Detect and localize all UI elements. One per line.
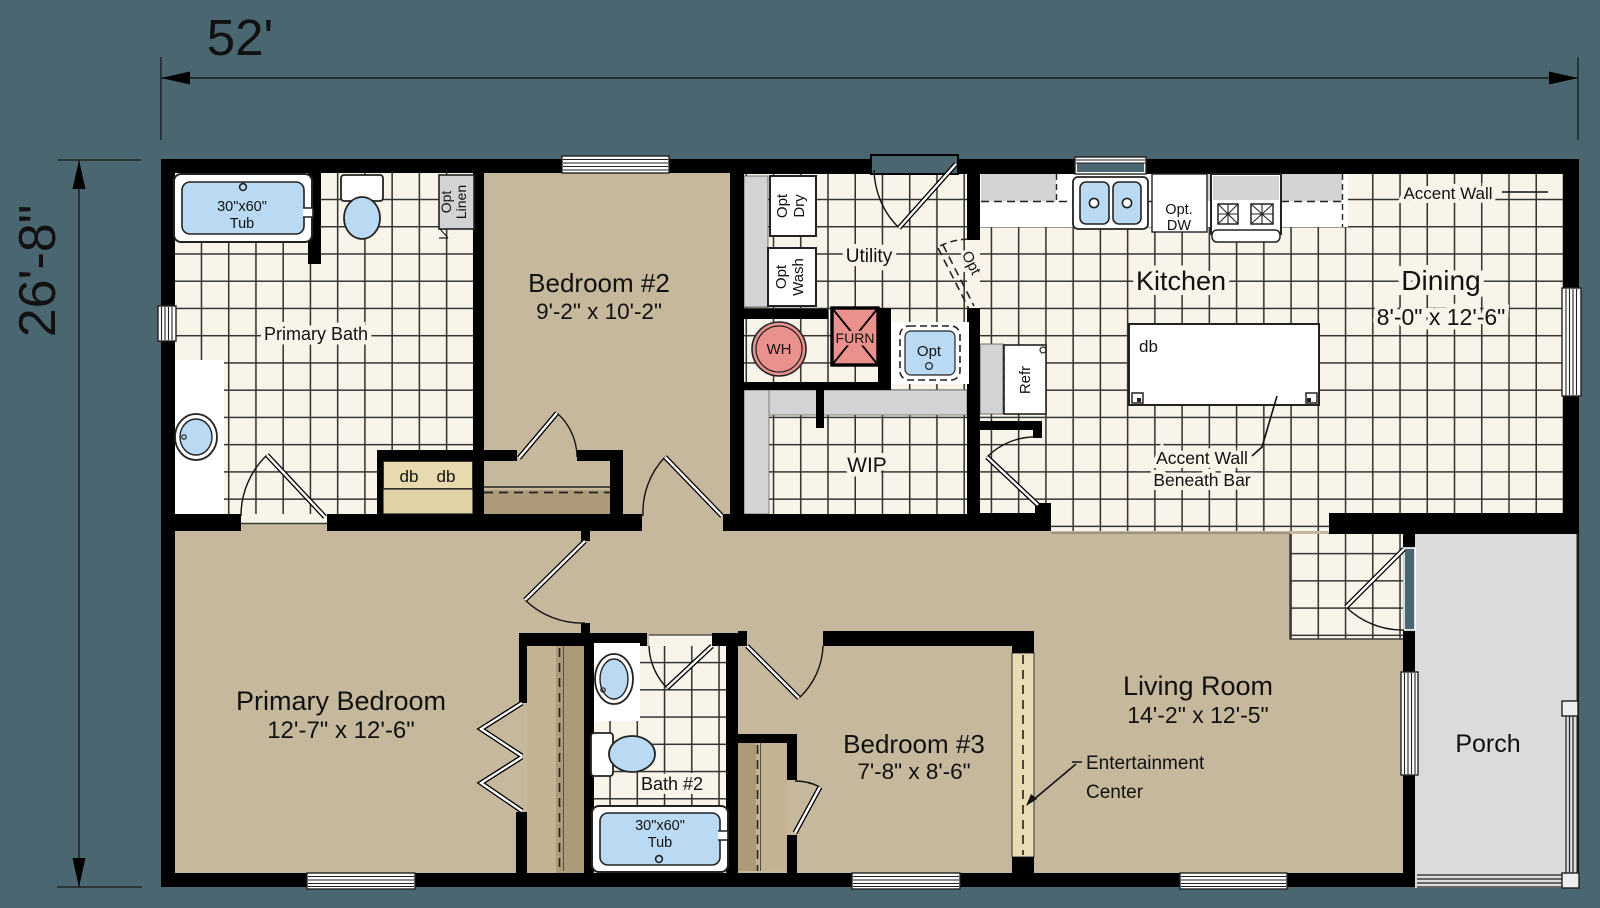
- svg-text:26'-8": 26'-8": [9, 205, 67, 337]
- svg-text:Primary Bath: Primary Bath: [264, 324, 368, 344]
- svg-text:Living Room: Living Room: [1123, 671, 1273, 701]
- svg-text:9'-2" x 10'-2": 9'-2" x 10'-2": [536, 299, 662, 324]
- svg-text:Tub: Tub: [648, 835, 672, 851]
- svg-text:db: db: [400, 467, 419, 486]
- svg-text:Center: Center: [1086, 782, 1144, 803]
- svg-text:Entertainment: Entertainment: [1086, 753, 1205, 774]
- svg-text:52': 52': [207, 9, 273, 66]
- svg-text:Tub: Tub: [230, 216, 254, 232]
- svg-text:Utility: Utility: [846, 246, 893, 267]
- svg-text:Opt: Opt: [917, 343, 942, 360]
- svg-text:Linen: Linen: [453, 185, 469, 219]
- svg-text:7'-8" x 8'-6": 7'-8" x 8'-6": [857, 759, 970, 784]
- svg-text:Accent Wall: Accent Wall: [1156, 448, 1248, 468]
- svg-text:Bedroom #3: Bedroom #3: [843, 729, 985, 759]
- svg-text:db: db: [437, 467, 456, 486]
- svg-text:Beneath Bar: Beneath Bar: [1153, 470, 1250, 490]
- svg-text:Wash: Wash: [790, 258, 807, 296]
- svg-text:Opt.: Opt.: [1165, 202, 1192, 218]
- svg-text:Refr: Refr: [1017, 366, 1034, 394]
- svg-text:Opt: Opt: [438, 191, 454, 214]
- svg-text:Bedroom #2: Bedroom #2: [528, 268, 670, 298]
- svg-text:30"x60": 30"x60": [635, 818, 685, 834]
- svg-text:14'-2" x 12'-5": 14'-2" x 12'-5": [1127, 702, 1268, 728]
- svg-text:DW: DW: [1167, 218, 1191, 234]
- svg-text:Kitchen: Kitchen: [1136, 266, 1226, 296]
- svg-text:Opt: Opt: [773, 264, 790, 289]
- svg-text:Dry: Dry: [791, 194, 808, 218]
- svg-text:Opt: Opt: [774, 193, 791, 218]
- svg-text:Primary Bedroom: Primary Bedroom: [236, 686, 446, 716]
- svg-text:Accent Wall: Accent Wall: [1403, 184, 1492, 203]
- svg-text:8'-0" x 12'-6": 8'-0" x 12'-6": [1377, 304, 1506, 330]
- svg-text:WH: WH: [767, 341, 792, 358]
- svg-text:FURN: FURN: [836, 330, 875, 346]
- svg-text:Porch: Porch: [1455, 730, 1520, 758]
- svg-text:db: db: [1139, 337, 1158, 356]
- svg-text:Bath #2: Bath #2: [641, 774, 703, 794]
- svg-text:WIP: WIP: [847, 454, 887, 477]
- svg-text:Dining: Dining: [1401, 265, 1480, 296]
- svg-text:30"x60": 30"x60": [217, 199, 267, 215]
- svg-text:12'-7" x 12'-6": 12'-7" x 12'-6": [267, 717, 415, 744]
